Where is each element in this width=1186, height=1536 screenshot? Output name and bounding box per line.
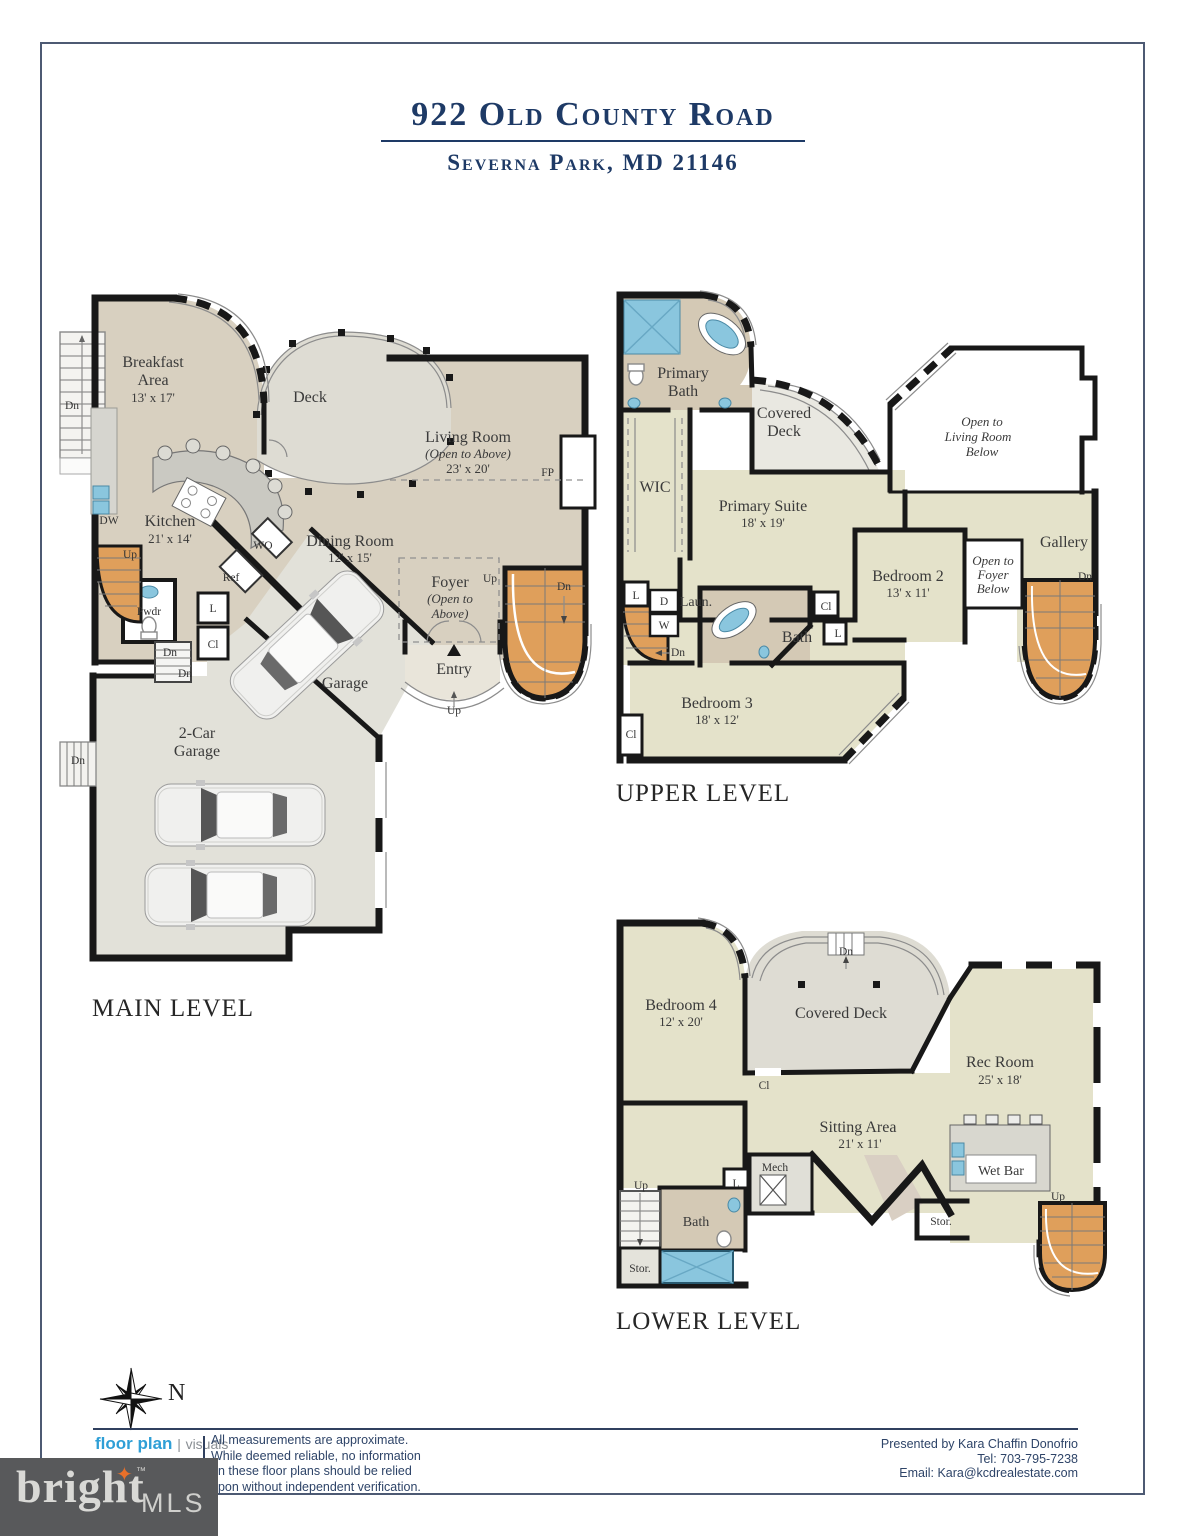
disclaimer-line: on these floor plans should be relied — [211, 1464, 421, 1480]
room-label: Mech — [762, 1162, 788, 1174]
svg-text:W: W — [659, 620, 670, 632]
bright-star-icon: ✦ — [116, 1462, 133, 1486]
floor-plan-sheet: 922 Old County Road Severna Park, MD 211… — [0, 0, 1186, 1536]
room-label: Area — [137, 372, 168, 389]
agent-email: Email: Kara@kcdrealestate.com — [881, 1466, 1078, 1481]
room-label: Bath — [668, 383, 698, 400]
room-note: Below — [977, 581, 1010, 596]
window — [1093, 1163, 1101, 1187]
room-label: Gallery — [1040, 534, 1088, 551]
toilet — [717, 1231, 731, 1247]
lower-stairs-up — [620, 1191, 660, 1248]
upper-spiral-stair — [1025, 580, 1095, 698]
bar-fridge — [952, 1161, 964, 1175]
bright-mls-logo: bright ✦ ™ MLS — [0, 1458, 218, 1536]
room-label: Covered — [757, 405, 811, 422]
room-label: Breakfast — [122, 354, 184, 371]
room-dims: 23' x 20' — [446, 461, 490, 476]
lower-shower — [660, 1251, 733, 1283]
room-label: Entry — [436, 661, 472, 678]
room-label: Bath — [683, 1215, 709, 1230]
fireplace — [561, 436, 595, 508]
room-label: Pwdr — [137, 606, 161, 618]
svg-text:Up: Up — [123, 549, 137, 561]
garage-door-1 — [375, 762, 383, 818]
car — [155, 780, 325, 850]
compass-rose-icon — [98, 1366, 176, 1432]
svg-text:Cl: Cl — [208, 639, 219, 651]
car — [145, 860, 315, 930]
room-note: Open to — [972, 553, 1014, 568]
floor-plan-visuals-logo: floor plan | visuals — [95, 1434, 228, 1454]
lower-level-label: LOWER LEVEL — [616, 1308, 801, 1336]
room-label: Primary — [657, 365, 709, 382]
room-note: Living Room — [944, 429, 1012, 444]
sink — [759, 646, 769, 658]
room-dims: 13' x 17' — [131, 390, 175, 405]
room-label: Bedroom 3 — [681, 695, 753, 712]
room-label: Deck — [293, 389, 327, 406]
room-note: (Open to Above) — [425, 446, 511, 461]
room-label: 2-Car — [179, 725, 216, 742]
sink — [628, 398, 640, 408]
room-label: Rec Room — [966, 1054, 1035, 1071]
logo-separator: | — [177, 1436, 181, 1452]
svg-text:Cl: Cl — [626, 729, 637, 741]
svg-text:Dn: Dn — [839, 946, 853, 958]
sink — [728, 1198, 740, 1212]
exterior-stair-west: Dn — [60, 742, 96, 786]
room-dims: 13' x 11' — [886, 585, 929, 600]
svg-text:Up: Up — [634, 1180, 648, 1192]
logo-primary: floor plan — [95, 1434, 172, 1453]
trademark-symbol: ™ — [136, 1466, 146, 1477]
footer-divider — [93, 1428, 1078, 1430]
svg-text:Dn: Dn — [1078, 571, 1092, 583]
svg-text:Up: Up — [447, 705, 461, 717]
room-dims: 21' x 14' — [148, 531, 192, 546]
wet-bar-counter — [950, 1115, 1050, 1191]
svg-text:WO: WO — [253, 540, 272, 552]
svg-text:Dn: Dn — [178, 668, 192, 680]
bedroom3-floor — [630, 663, 904, 760]
room-label: Dining Room — [306, 533, 394, 550]
room-note: Foyer — [976, 567, 1009, 582]
room-dims: 21' x 11' — [838, 1136, 881, 1151]
room-label: Stor. — [629, 1263, 651, 1275]
room-label: Kitchen — [145, 513, 196, 530]
main-level-floor-plan: Dn — [57, 290, 597, 990]
window — [1002, 961, 1026, 969]
title-block: 922 Old County Road Severna Park, MD 211… — [0, 96, 1186, 176]
room-label: Foyer — [431, 574, 469, 591]
garage-door-2 — [375, 852, 383, 908]
lower-level-floor-plan: Bedroom 4 12' x 20' Dn Covered Deck Rec … — [612, 903, 1112, 1303]
svg-text:Dn: Dn — [671, 647, 685, 659]
room-note: Below — [966, 444, 999, 459]
disclaimer-line: upon without independent verification. — [211, 1480, 421, 1496]
room-dims: 12' x 20' — [659, 1014, 703, 1029]
powder-sink — [140, 586, 158, 598]
room-label: Stor. — [930, 1216, 952, 1228]
primary-shower — [624, 300, 680, 354]
room-note: Above) — [431, 606, 469, 621]
stair-dn-label: Dn — [65, 400, 79, 412]
agent-tel: Tel: 703-795-7238 — [881, 1452, 1078, 1467]
room-dims: 18' x 19' — [741, 515, 785, 530]
upper-level-label: UPPER LEVEL — [616, 780, 790, 808]
room-label: Garage — [174, 743, 220, 760]
svg-text:Dn: Dn — [163, 647, 177, 659]
svg-text:Dn: Dn — [557, 581, 571, 593]
room-label: Bath — [782, 629, 812, 646]
spiral-stair — [505, 568, 585, 698]
upper-level-floor-plan: Primary Bath Covered Deck Open to Living… — [612, 290, 1112, 770]
svg-text:L: L — [732, 1178, 739, 1190]
svg-text:Up: Up — [483, 573, 497, 585]
agent-contact-block: Presented by Kara Chaffin Donofrio Tel: … — [881, 1437, 1078, 1481]
title-underline — [381, 140, 805, 142]
room-dims: 25' x 18' — [978, 1072, 1022, 1087]
disclaimer-text: All measurements are approximate. While … — [211, 1433, 421, 1495]
room-label: Bedroom 2 — [872, 568, 944, 585]
room-dims: 18' x 12' — [695, 712, 739, 727]
room-dims: 12' x 15' — [328, 550, 372, 565]
svg-text:Cl: Cl — [759, 1080, 770, 1092]
window — [1093, 1083, 1101, 1107]
room-label: Living Room — [425, 429, 511, 446]
mls-wordmark: MLS — [141, 1488, 206, 1519]
svg-text:Dn: Dn — [71, 755, 85, 767]
room-note: Open to — [961, 414, 1003, 429]
window — [1052, 961, 1076, 969]
presented-by: Presented by Kara Chaffin Donofrio — [881, 1437, 1078, 1452]
main-level-label: MAIN LEVEL — [92, 995, 254, 1023]
footer-vertical-divider — [203, 1436, 205, 1460]
page-subtitle: Severna Park, MD 21146 — [0, 150, 1186, 176]
room-note: (Open to — [427, 591, 473, 606]
lower-spiral-stair — [1040, 1203, 1105, 1290]
room-label: Laun. — [680, 595, 712, 610]
disclaimer-line: All measurements are approximate. — [211, 1433, 421, 1449]
kitchen-counter — [91, 408, 117, 514]
svg-text:D: D — [660, 596, 668, 608]
room-label: Wet Bar — [978, 1164, 1024, 1179]
svg-text:Cl: Cl — [821, 601, 832, 613]
page-title: 922 Old County Road — [0, 96, 1186, 134]
room-label: Covered Deck — [795, 1005, 887, 1022]
fp-label: FP — [541, 467, 554, 479]
svg-text:L: L — [209, 603, 216, 615]
room-label: Sitting Area — [820, 1119, 897, 1136]
room-label: Garage — [322, 675, 368, 692]
disclaimer-line: While deemed reliable, no information — [211, 1449, 421, 1465]
room-label: Deck — [767, 423, 801, 440]
svg-text:Up: Up — [1051, 1191, 1065, 1203]
svg-text:L: L — [834, 628, 841, 640]
room-label: Primary Suite — [719, 498, 807, 515]
bar-fridge — [952, 1143, 964, 1157]
room-label: WIC — [639, 479, 670, 496]
kitchen-sink — [93, 486, 109, 499]
room-label: Bedroom 4 — [645, 997, 717, 1014]
window — [1093, 1003, 1101, 1027]
svg-text:Ref: Ref — [223, 572, 240, 584]
sink — [719, 398, 731, 408]
north-label: N — [168, 1380, 185, 1407]
svg-text:L: L — [632, 590, 639, 602]
svg-text:DW: DW — [99, 515, 118, 527]
closet-door — [755, 1068, 781, 1076]
